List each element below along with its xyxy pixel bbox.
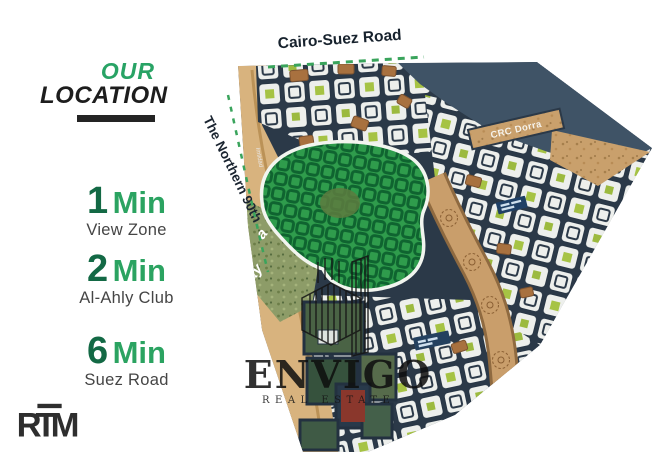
top-road-labelgroup: Cairo-Suez Road xyxy=(268,27,424,67)
map-graphic: CRC Dorra Imtidad xyxy=(0,0,668,452)
watermark-brand: ENVIGO xyxy=(244,352,433,397)
map: CRC Dorra Imtidad xyxy=(0,0,668,452)
location-infographic: OUR LOCATION 1 Min View Zone 2 Min Al-Ah… xyxy=(0,0,668,452)
cairo-suez-road-label: Cairo-Suez Road xyxy=(277,27,402,53)
watermark-caption: REAL ESTATE xyxy=(262,395,395,406)
compound-park xyxy=(320,188,360,218)
